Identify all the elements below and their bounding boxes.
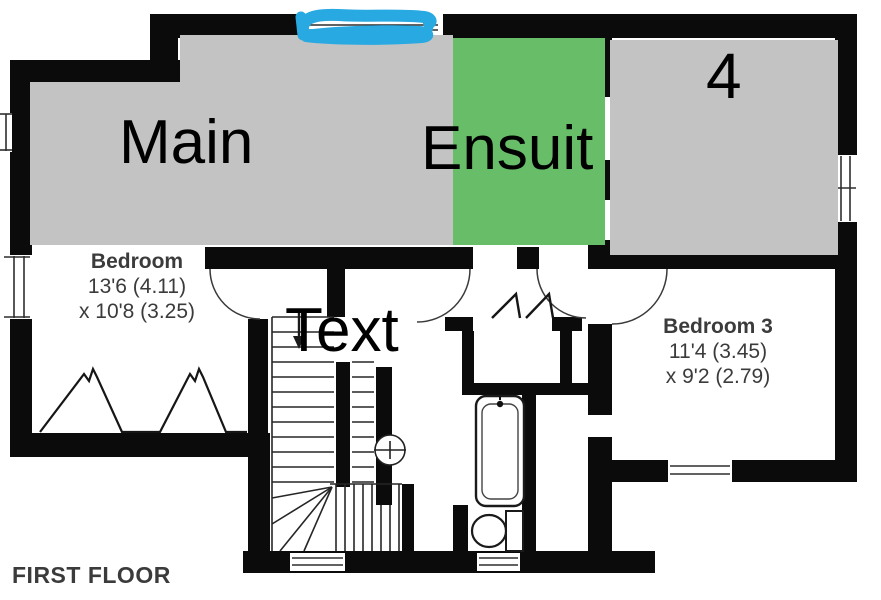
room-dim-2: x 10'8 (3.25) <box>47 299 227 324</box>
room-dim-2: x 9'2 (2.79) <box>628 364 808 389</box>
bath-tub <box>476 396 524 506</box>
floor-title: FIRST FLOOR <box>12 562 171 589</box>
room-name: Bedroom 3 <box>628 314 808 339</box>
room-dim-1: 13'6 (4.11) <box>47 274 227 299</box>
annotation-text-ensuite[interactable]: Ensuit <box>421 118 593 180</box>
annotation-text-bedroom4[interactable]: 4 <box>706 44 742 108</box>
closet-chevrons <box>492 294 553 318</box>
floorplan-annotation-canvas: Bedroom 13'6 (4.11) x 10'8 (3.25) Bedroo… <box>0 0 881 600</box>
toilet <box>472 511 523 551</box>
wardrobe-zigzag <box>40 369 247 432</box>
room-name: Bedroom <box>47 249 227 274</box>
room-label-bedroom1: Bedroom 13'6 (4.11) x 10'8 (3.25) <box>47 249 227 324</box>
room-label-bedroom3: Bedroom 3 11'4 (3.45) x 9'2 (2.79) <box>628 314 808 389</box>
annotation-text-main[interactable]: Main <box>119 112 253 174</box>
door-knob-icon <box>374 435 406 465</box>
annotation-text-floating[interactable]: Text <box>285 300 399 362</box>
room-dim-1: 11'4 (3.45) <box>628 339 808 364</box>
